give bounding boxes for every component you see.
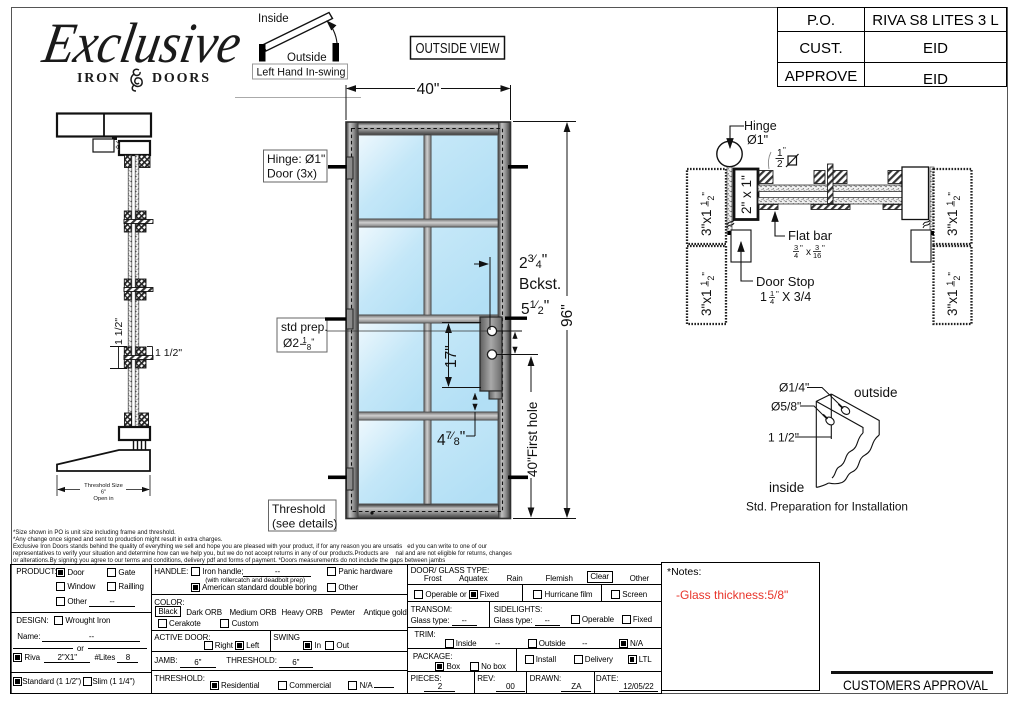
svg-text:Open in: Open in (93, 496, 113, 502)
svg-text:": " (800, 244, 803, 253)
svg-text:Door Stop: Door Stop (756, 274, 815, 289)
svg-text:1 1/2": 1 1/2" (113, 318, 125, 345)
svg-text:Threshold: Threshold (272, 502, 325, 516)
svg-text:Inside: Inside (258, 13, 289, 25)
svg-text:96": 96" (559, 304, 576, 327)
svg-text:Outside: Outside (287, 52, 327, 64)
svg-text:Bckst.: Bckst. (519, 276, 561, 293)
svg-text:OUTSIDE VIEW: OUTSIDE VIEW (416, 40, 501, 57)
svg-text:1 1/2": 1 1/2" (155, 347, 182, 359)
svg-text:4: 4 (770, 297, 774, 306)
svg-text:inside: inside (769, 480, 804, 495)
svg-text:40": 40" (417, 81, 440, 98)
svg-text:Ø5/8": Ø5/8" (771, 400, 801, 414)
svg-text:40"First hole: 40"First hole (525, 402, 540, 477)
svg-text:outside: outside (854, 385, 898, 400)
svg-text:Left Hand In-swing: Left Hand In-swing (257, 67, 346, 79)
svg-text:": " (822, 244, 825, 253)
svg-text:Hinge: Hinge (744, 119, 777, 133)
svg-text:2" x 1": 2" x 1" (739, 175, 754, 214)
svg-text:std prep.: std prep. (281, 320, 328, 334)
svg-text:Hinge: Ø1": Hinge: Ø1" (267, 152, 325, 166)
svg-text:2: 2 (777, 159, 783, 170)
svg-text:": " (776, 290, 779, 299)
svg-text:Std. Preparation for Installat: Std. Preparation for Installation (746, 500, 908, 514)
svg-text:": " (783, 146, 786, 155)
svg-text:Ø1/4": Ø1/4" (779, 381, 809, 395)
svg-text:51⁄2": 51⁄2" (521, 298, 549, 318)
svg-text:Ø1": Ø1" (747, 133, 768, 147)
svg-text:x: x (806, 247, 811, 258)
svg-text:1 1/2": 1 1/2" (768, 431, 799, 445)
svg-text:Door (3x): Door (3x) (267, 167, 317, 181)
svg-text:4: 4 (794, 251, 798, 260)
svg-text:X 3/4: X 3/4 (782, 290, 811, 304)
svg-text:(see details): (see details) (272, 517, 337, 531)
svg-text:23⁄4": 23⁄4" (519, 252, 547, 272)
svg-text:6": 6" (101, 490, 106, 496)
svg-text:17": 17" (443, 345, 460, 368)
svg-text:1: 1 (760, 290, 767, 304)
svg-text:16: 16 (813, 251, 821, 260)
svg-text:Flat bar: Flat bar (788, 228, 833, 243)
svg-text:Threshold Size: Threshold Size (84, 483, 123, 489)
